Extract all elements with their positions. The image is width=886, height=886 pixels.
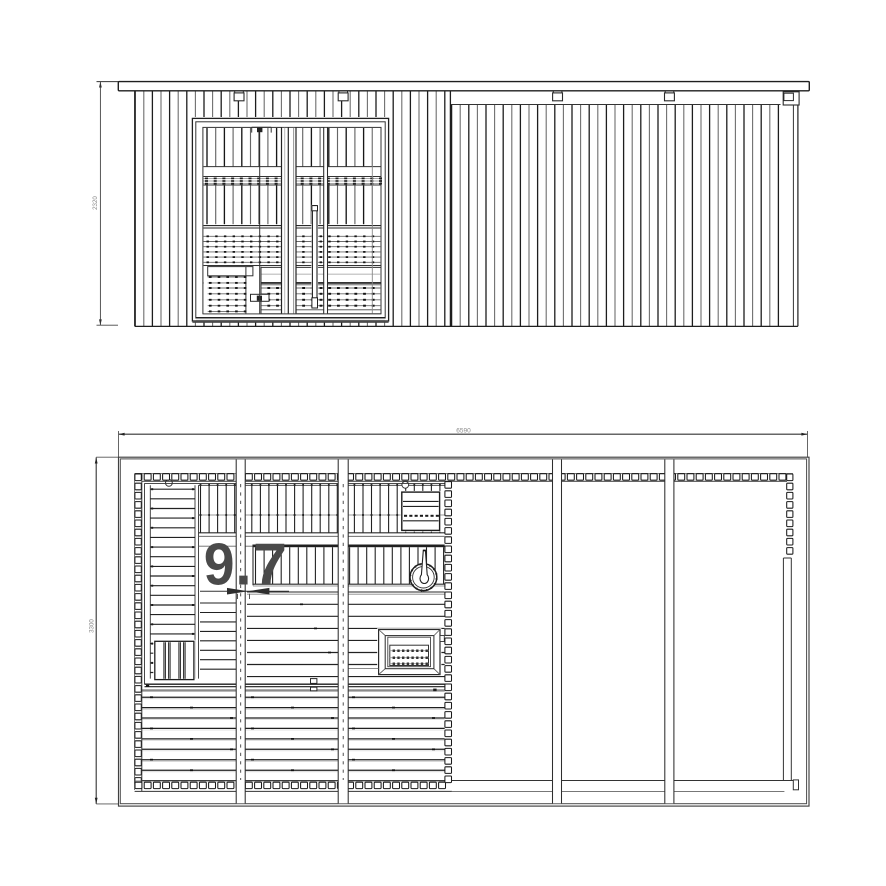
svg-text:9: 9 <box>204 532 235 598</box>
svg-text:6590: 6590 <box>456 428 471 435</box>
svg-text:2320: 2320 <box>92 196 99 210</box>
svg-text:7: 7 <box>253 532 287 598</box>
svg-text:3300: 3300 <box>89 619 96 633</box>
svg-text:.: . <box>235 532 251 598</box>
